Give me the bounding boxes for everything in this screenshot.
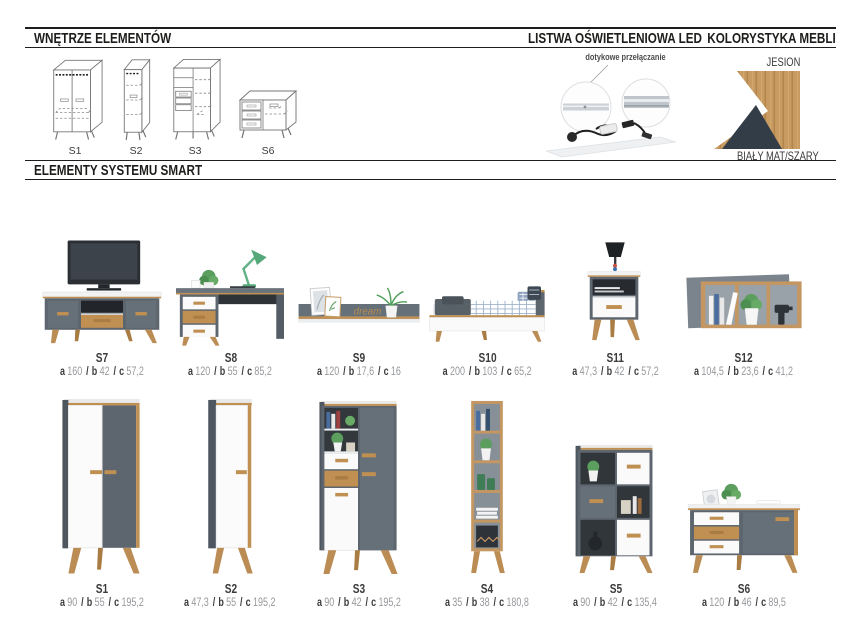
wall-shelf-image: dream [296,272,422,336]
product-card-s10: S10 a200/b103/c65,2 [423,226,551,379]
product-photo-s1 [38,395,166,577]
product-code: S12 [735,351,753,364]
color-label-jesion: JESION [714,55,800,69]
product-photo-s3 [295,395,423,577]
product-dimensions: a90/b42/c135,4 [561,597,670,610]
product-code: S1 [96,582,108,595]
interior-label: S6 [262,145,275,157]
dresser-wireframe-icon [236,86,300,142]
product-card-s5: S5 a90/b42/c135,4 [551,395,679,610]
product-code: S11 [607,351,624,364]
product-card-s6: S6 a120/b46/c89,5 [680,395,808,610]
product-dimensions: a104,5/b23,6/c41,2 [680,366,808,379]
product-card-s3: S3 a90/b42/c195,2 [295,395,423,610]
product-photo-s4 [423,395,551,577]
product-code: S7 [96,351,108,364]
chest-image [569,439,661,577]
interior-label: S3 [189,145,202,157]
product-photo-s2 [166,395,294,577]
cabinet-wireframe-icon [118,54,154,142]
product-dimensions: a35/b38/c180,8 [433,597,542,610]
product-photo-s11 [551,226,679,346]
interiors-strip: S1 S2 [46,54,300,157]
product-photo-s10 [423,226,551,346]
product-dimensions: a90/b55/c195,2 [48,597,157,610]
interior-label: S2 [130,145,143,157]
interior-diagram-s2: S2 [118,54,154,157]
bookcase-wireframe-icon [168,54,222,142]
product-dimensions: a47,3/b42/c57,2 [560,366,672,379]
interior-diagram-s1: S1 [46,54,104,157]
product-code: S6 [738,582,750,595]
product-card-s7: S7 a160/b42/c57,2 [38,226,166,379]
section-title-elements: ELEMENTY SYSTEMU SMART [34,162,250,179]
led-caption: dotykowe przełączanie [538,52,694,63]
product-card-s8: S8 a120/b55/c85,2 [166,226,294,379]
product-dimensions: a120/b55/c85,2 [176,366,285,379]
product-card-s4: S4 a35/b38/c180,8 [423,395,551,610]
interior-label: S1 [69,145,82,157]
product-photo-s12 [680,226,808,346]
product-card-s1: S1 a90/b55/c195,2 [38,395,166,610]
product-photo-s8 [166,226,294,346]
interior-diagram-s6: S6 [236,86,300,157]
nightstand-image [580,236,650,346]
product-photo-s6 [680,395,808,577]
wardrobe-wireframe-icon [46,54,104,142]
product-dimensions: a90/b42/c195,2 [305,597,414,610]
product-dimensions: a160/b42/c57,2 [48,366,157,379]
product-code: S3 [353,582,365,595]
product-dimensions: a200/b103/c65,2 [430,366,545,379]
open-rack-image [464,397,510,577]
product-card-s12: S12 a104,5/b23,6/c41,2 [680,226,808,379]
product-code: S10 [478,351,496,364]
material-swatch [714,71,800,149]
product-code: S9 [353,351,365,364]
dream-sign: dream [353,307,381,318]
led-strip-photo [538,63,694,163]
rule-under-headers [25,47,836,48]
sideboard-image [682,475,806,577]
wardrobe-image [56,397,148,577]
section-title-colors: KOLORYSTYKA MEBLI [671,30,836,47]
interior-diagram-s3: S3 [168,54,222,157]
product-dimensions: a47,3/b55/c195,2 [171,597,289,610]
product-card-s11: S11 a47,3/b42/c57,2 [551,226,679,379]
product-code: S4 [481,582,493,595]
colors-block: JESION BIAŁY MAT/SZARY [714,55,800,163]
product-photo-s9: dream [295,226,423,346]
product-code: S2 [224,582,236,595]
product-photo-s7 [38,226,166,346]
product-code: S5 [609,582,621,595]
product-card-s2: S2 a47,3/b55/c195,2 [166,395,294,610]
rule-under-elements [25,179,836,180]
narrow-wardrobe-image [202,397,258,577]
section-title-interiors: WNĘTRZE ELEMENTÓW [34,30,210,47]
product-code: S8 [224,351,236,364]
catalog-page: WNĘTRZE ELEMENTÓW LISTWA OŚWIETLENIOWA L… [0,0,844,632]
products-grid: S7 a160/b42/c57,2 [38,226,808,610]
desk-image [172,238,288,346]
product-card-s9: dream S9 a120/b17,6/c16 [295,226,423,379]
hanging-shelf-image [681,266,807,340]
color-label-bialy-mat-szary: BIAŁY MAT/SZARY [714,149,800,163]
bed-image [424,270,550,346]
led-block: dotykowe przełączanie [538,52,694,168]
product-photo-s5 [551,395,679,577]
rule-top [25,27,836,29]
tv-stand-image [39,238,165,346]
product-dimensions: a120/b17,6/c16 [305,366,414,379]
bookcase-image [313,397,405,577]
product-dimensions: a120/b46/c89,5 [690,597,799,610]
